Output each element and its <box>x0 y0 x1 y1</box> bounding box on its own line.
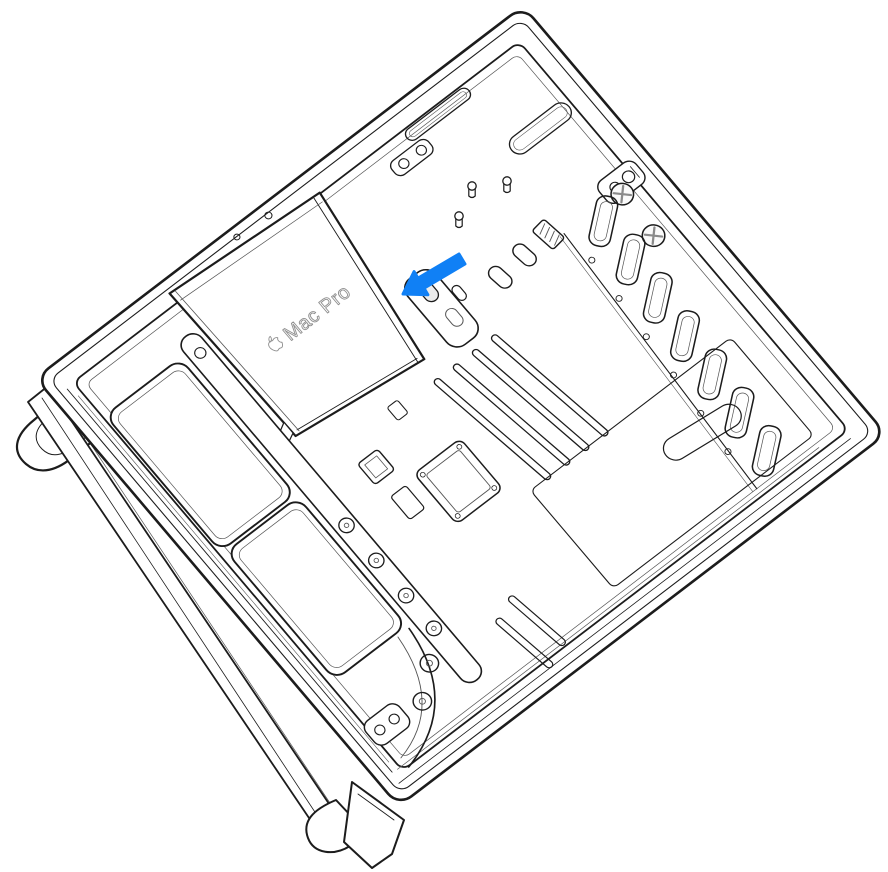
mac-pro-service-illustration: Mac Pro <box>0 0 888 872</box>
mac-pro-case: Mac Pro <box>36 6 886 806</box>
mac-pro-drawing: Mac Pro <box>0 0 888 872</box>
